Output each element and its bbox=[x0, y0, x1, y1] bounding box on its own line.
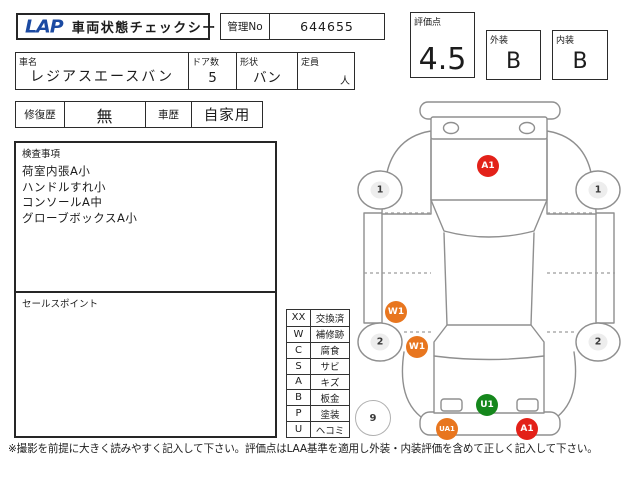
check-sheet-page: LAP 車両状態チェックシート 管理No 644655 評価点 4.5 外装 B… bbox=[0, 0, 640, 480]
car-diagram bbox=[0, 0, 640, 480]
hood-sides bbox=[431, 139, 547, 200]
rear-bumper bbox=[420, 412, 560, 435]
roof-edges bbox=[444, 233, 534, 325]
rear-right-wheel bbox=[576, 323, 620, 361]
front-fascia bbox=[431, 117, 547, 139]
footer-note: ※撮影を前提に大きく読みやすく記入して下さい。評価点はLAA基準を適用し外装・内… bbox=[8, 441, 640, 456]
front-right-wheel bbox=[576, 171, 620, 209]
left-sill bbox=[364, 213, 382, 323]
right-sill bbox=[596, 213, 614, 323]
windshield bbox=[431, 200, 547, 237]
left-taillight bbox=[441, 399, 462, 411]
right-taillight bbox=[517, 399, 538, 411]
front-left-wheel bbox=[358, 171, 402, 209]
rear-left-wheel bbox=[358, 323, 402, 361]
